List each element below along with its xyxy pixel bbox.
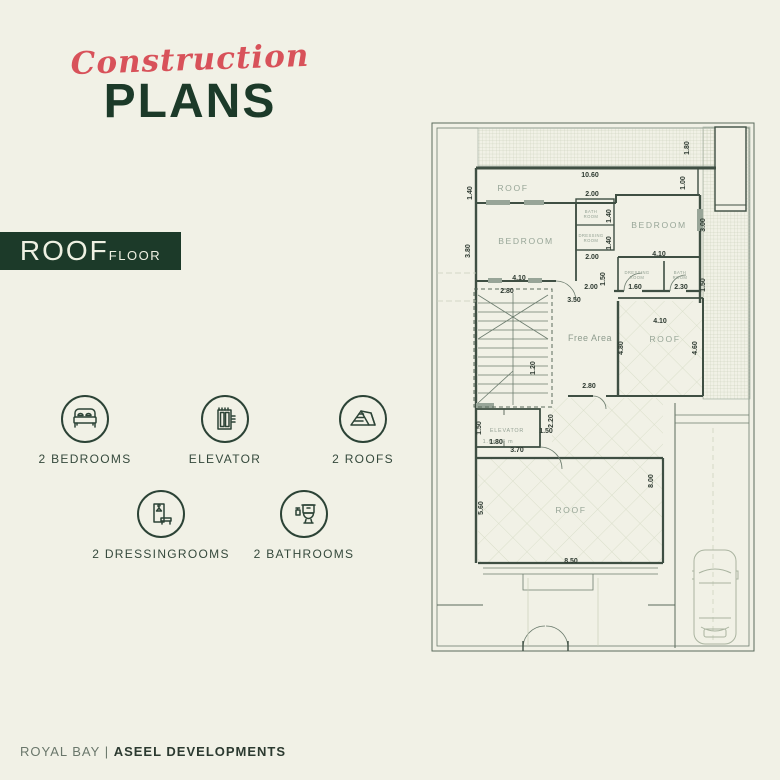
dimension-label: 1.20 — [530, 361, 537, 375]
room-label: ROOF — [497, 183, 528, 193]
dressing-icon — [137, 490, 185, 538]
dimension-label: 1.40 — [467, 186, 474, 200]
dimension-label: 2.00 — [584, 284, 598, 291]
dimension-label: 4.10 — [652, 251, 666, 258]
elevator-icon — [201, 395, 249, 443]
legend-label: 2 BEDROOMS — [25, 452, 145, 466]
room-label: ROOM — [584, 238, 599, 243]
dimension-label: 8.50 — [564, 558, 578, 565]
title-block: Construction PLANS — [60, 42, 320, 129]
dimension-label: 3.00 — [700, 218, 707, 232]
toilet-icon — [280, 490, 328, 538]
dimension-label: 1.50 — [476, 421, 483, 435]
shaft — [715, 127, 746, 211]
legend-label: 2 BATHROOMS — [229, 547, 379, 561]
dimension-label: 8.00 — [648, 474, 655, 488]
room-label: ELEVATOR — [490, 428, 524, 434]
entrance-gate — [523, 626, 568, 651]
footer-company: ASEEL DEVELOPMENTS — [114, 744, 286, 759]
dimension-label: 1.80 — [684, 141, 691, 155]
dimension-label: 1.00 — [680, 176, 687, 190]
legend-item-bedrooms: 2 BEDROOMS — [25, 395, 145, 466]
legend-label: 2 ROOFS — [303, 452, 423, 466]
legend-label: 2 DRESSINGROOMS — [76, 547, 246, 561]
staircase — [474, 289, 552, 407]
room-label: ROOF — [649, 334, 680, 344]
floor-tag-name: ROOF — [20, 232, 109, 270]
dimension-label: 2.20 — [548, 414, 555, 428]
dimension-label: 4.10 — [653, 318, 667, 325]
dimension-label: 4.10 — [512, 275, 526, 282]
floor-tag: ROOF FLOOR — [0, 232, 181, 270]
room-label: BEDROOM — [631, 220, 687, 230]
dimension-label: 1.80 — [489, 439, 503, 446]
legend-item-elevator: ELEVATOR — [165, 395, 285, 466]
dimension-label: 2.30 — [674, 284, 688, 291]
page: { "title": { "script": "Construction", "… — [0, 0, 780, 780]
room-label: ROOM — [584, 214, 599, 219]
room-label: BEDROOM — [498, 236, 554, 246]
dimension-label: 1.50 — [600, 272, 607, 286]
dimension-label: 1.50 — [539, 428, 553, 435]
dimension-label: 1.40 — [606, 236, 613, 250]
dimension-label: 3.80 — [465, 244, 472, 258]
dimension-label: 2.00 — [585, 254, 599, 261]
room-label: ROOM — [673, 275, 688, 280]
dimension-label: 1.60 — [628, 284, 642, 291]
room-label: ROOM — [630, 275, 645, 280]
dimension-label: 2.80 — [500, 288, 514, 295]
footer-divider: | — [105, 744, 109, 759]
floor-plan: ROOFBEDROOMBATHROOMDRESSINGROOMBEDROOMDR… — [428, 113, 768, 669]
dimension-label: 4.80 — [618, 341, 625, 355]
legend-label: ELEVATOR — [165, 452, 285, 466]
dimension-label: 2.00 — [585, 191, 599, 198]
dimension-label: 1.40 — [606, 209, 613, 223]
dimension-label: 2.80 — [582, 383, 596, 390]
room-label: Free Area — [568, 333, 612, 343]
page-title: PLANS — [60, 74, 320, 129]
legend-item-dressingrooms: 2 DRESSINGROOMS — [76, 490, 246, 561]
roof-icon — [339, 395, 387, 443]
legend-item-roofs: 2 ROOFS — [303, 395, 423, 466]
dimension-label: 3.50 — [567, 297, 581, 304]
dimension-label: 5.60 — [478, 501, 485, 515]
legend-item-bathrooms: 2 BATHROOMS — [229, 490, 379, 561]
dimension-label: 4.60 — [692, 341, 699, 355]
bed-icon — [61, 395, 109, 443]
dimension-label: 10.60 — [581, 172, 599, 179]
dimension-label: 3.70 — [510, 447, 524, 454]
dimension-label: 1.50 — [700, 278, 707, 292]
porch-steps — [483, 568, 658, 590]
floor-tag-suffix: FLOOR — [109, 248, 161, 263]
footer-brand: ROYAL BAY — [20, 744, 100, 759]
footer: ROYAL BAY | ASEEL DEVELOPMENTS — [20, 744, 286, 759]
car — [692, 550, 738, 644]
room-label: ROOF — [555, 505, 586, 515]
